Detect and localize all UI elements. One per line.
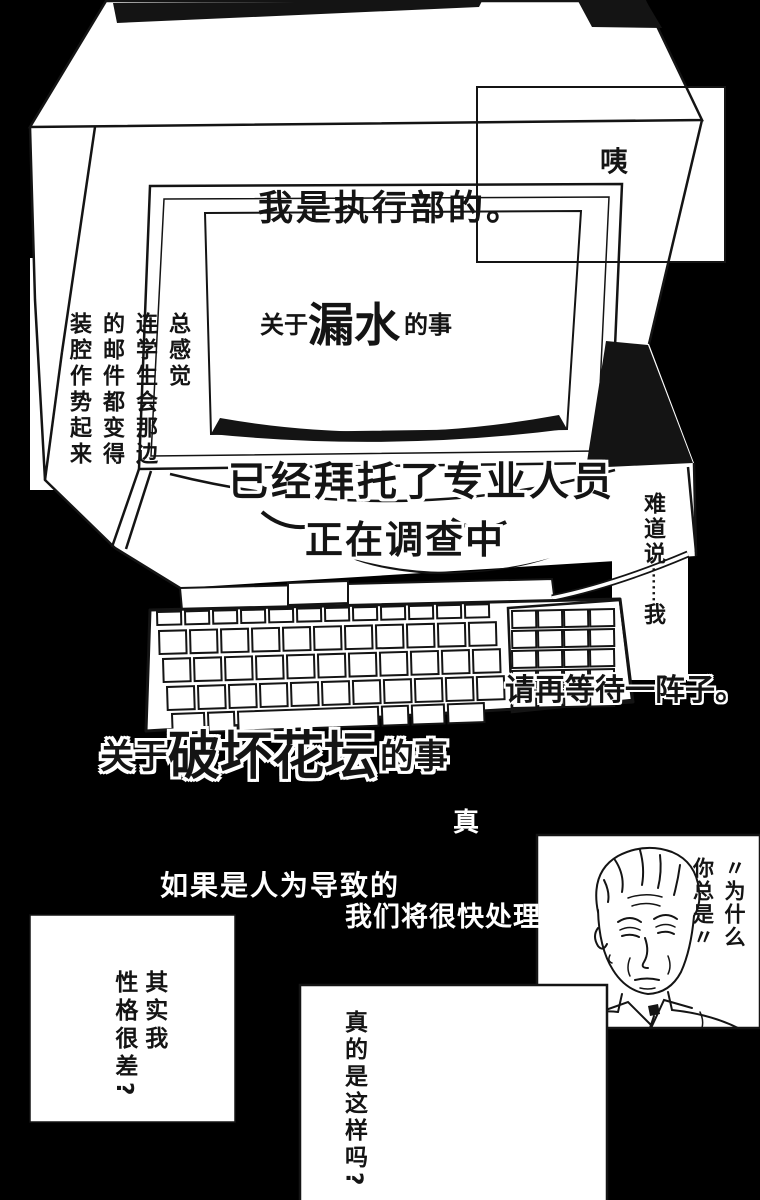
- wait-caption: 请再等待一阵子。: [505, 676, 745, 706]
- manga-page: 咦 我是执行部的。 关于 漏水 的事 总感觉 连学生会那边 的邮件都变得 装腔作…: [0, 0, 760, 1200]
- portrait-quote-text: 〃为什么 你总是〃: [686, 857, 749, 949]
- screen-text-line1: 我是执行部的。: [258, 192, 524, 227]
- condition-line1: 如果是人为导致的: [160, 872, 400, 900]
- self-doubt-text: 其实我 性格很差?: [108, 970, 168, 1100]
- flowerbed-prefix: 关于: [100, 740, 168, 774]
- doubt-dots: ······: [645, 567, 660, 603]
- caption-investigate-2: 正在调查中: [305, 521, 505, 559]
- truth-fragment: 真: [453, 810, 479, 836]
- really-question-text: 真的是这样吗?: [336, 1010, 371, 1189]
- caption-investigate-1: 已经拜托了专业人员: [228, 462, 615, 502]
- screen-line2-prefix: 关于: [260, 313, 308, 337]
- left-monologue-text: 总感觉 连学生会那边 的邮件都变得 装腔作势起来: [62, 312, 194, 468]
- flowerbed-caption: 关于 破坏花坛 的事: [100, 731, 448, 783]
- screen-text-line2: 关于 漏水 的事: [260, 302, 452, 348]
- doubt-pre: 难道说: [640, 492, 665, 567]
- doubt-text: 难道说······我: [636, 492, 702, 628]
- screen-line2-big: 漏水: [308, 302, 400, 348]
- doubt-post: 我: [640, 603, 665, 628]
- flowerbed-big: 破坏花坛: [168, 731, 376, 783]
- condition-line2: 我们将很快处理: [345, 904, 541, 931]
- flowerbed-suffix: 的事: [380, 740, 448, 774]
- surprise-bubble-text: 咦: [600, 148, 628, 176]
- screen-line2-suffix: 的事: [404, 313, 452, 337]
